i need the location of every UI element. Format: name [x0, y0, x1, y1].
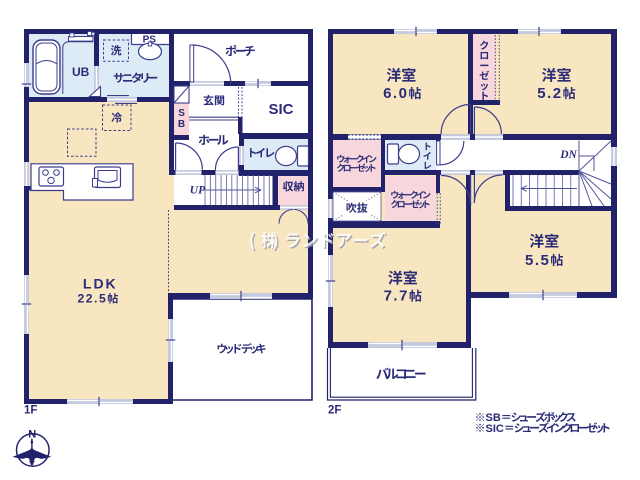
- svg-text:5.5: 5.5: [525, 252, 550, 269]
- svg-text:22.5: 22.5: [78, 292, 108, 306]
- svg-text:DN: DN: [559, 149, 577, 161]
- svg-text:7.7: 7.7: [384, 288, 409, 305]
- svg-text:UB: UB: [72, 65, 90, 79]
- svg-text:5.2: 5.2: [537, 85, 562, 102]
- svg-text:S: S: [178, 108, 185, 119]
- svg-text:SIC: SIC: [486, 423, 504, 435]
- svg-text:UP: UP: [190, 185, 206, 197]
- svg-text:B: B: [178, 119, 185, 130]
- svg-text:1F: 1F: [24, 405, 37, 417]
- svg-text:6.0: 6.0: [383, 85, 408, 102]
- svg-text:2F: 2F: [328, 405, 341, 417]
- svg-text:SIC: SIC: [269, 101, 294, 118]
- svg-text:LDK: LDK: [83, 275, 118, 291]
